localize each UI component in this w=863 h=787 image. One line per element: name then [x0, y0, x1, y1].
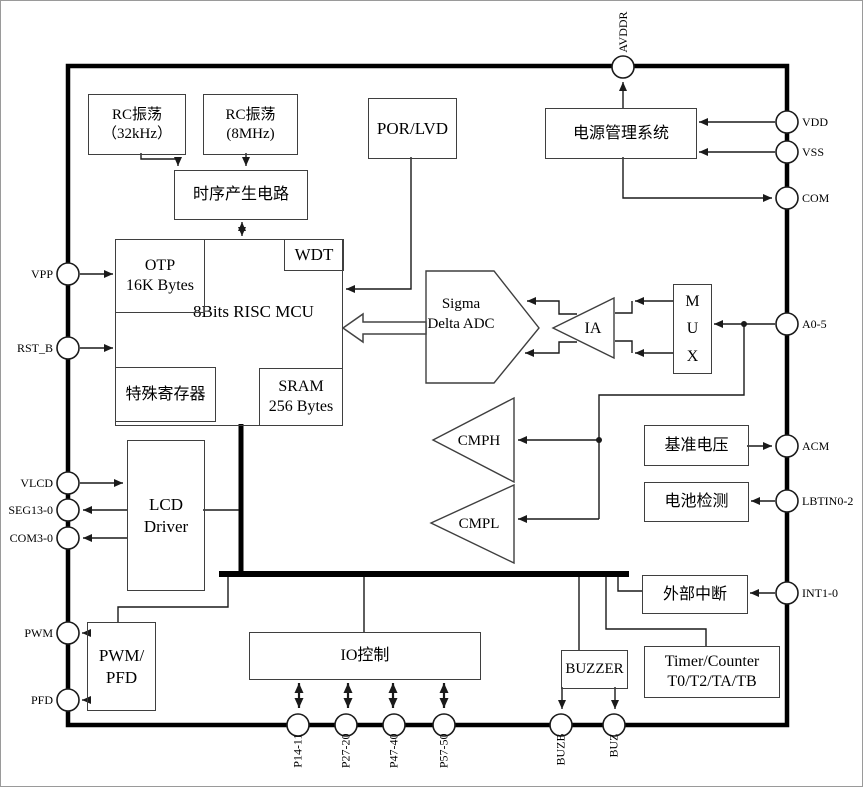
pin-vdd-pad	[776, 111, 798, 133]
sram-line2: 256 Bytes	[269, 397, 333, 417]
block-sram: SRAM 256 Bytes	[259, 368, 343, 426]
pin-p47-label: P47-40	[387, 734, 402, 784]
sfr-label: 特殊寄存器	[125, 385, 205, 405]
buzzer-label: BUZZER	[565, 660, 623, 679]
block-rc-osc-8m: RC振荡 (8MHz)	[203, 94, 298, 155]
pin-vdd-label: VDD	[802, 115, 828, 130]
block-wdt: WDT	[284, 239, 344, 271]
adc-label: Sigma Delta ADC	[426, 295, 496, 334]
timer-line2: T0/T2/TA/TB	[667, 672, 756, 692]
timing-label: 时序产生电路	[193, 185, 289, 205]
pin-int10-pad	[776, 582, 798, 604]
pin-com-pad	[776, 187, 798, 209]
pin-com-label: COM	[802, 191, 829, 206]
block-ext-interrupt: 外部中断	[642, 575, 748, 614]
pin-p27-label: P27-20	[339, 734, 354, 784]
pin-acm-pad	[776, 435, 798, 457]
pin-lbtin-pad	[776, 490, 798, 512]
wire-mux-ia-bottom-step	[615, 341, 632, 353]
lcd-line2: Driver	[144, 516, 188, 537]
vref-label: 基准电压	[664, 436, 728, 456]
power-label: 电源管理系统	[573, 124, 669, 144]
pin-pwm-pad	[57, 622, 79, 644]
wire-power-com	[623, 157, 772, 198]
wire-ia-adc-bottom	[525, 342, 577, 353]
sram-line1: SRAM	[278, 377, 323, 397]
lcd-line1: LCD	[149, 494, 183, 515]
pin-vlcd-pad	[57, 472, 79, 494]
block-vref: 基准电压	[644, 425, 749, 466]
wire-ia-adc-top	[527, 301, 577, 314]
mux-line3: X	[687, 343, 699, 370]
rc32-line2: （32kHz）	[102, 125, 172, 144]
mcu-line2: RISC MCU	[233, 302, 314, 321]
pin-acm-label: ACM	[802, 439, 829, 454]
pin-vss-label: VSS	[802, 145, 824, 160]
pin-com3-pad	[57, 527, 79, 549]
junction-dot-cmph	[596, 437, 602, 443]
porlvd-label: POR/LVD	[377, 118, 448, 139]
block-por-lvd: POR/LVD	[368, 98, 457, 159]
pin-buzb-label: BUZB	[554, 734, 569, 784]
otp-line1: OTP	[145, 256, 175, 276]
junction-dot-a05	[741, 321, 747, 327]
ext-interrupt-label: 外部中断	[663, 585, 727, 605]
pwmpfd-line2: PFD	[106, 667, 137, 688]
block-special-registers: 特殊寄存器	[115, 367, 216, 422]
pin-seg-label: SEG13-0	[1, 503, 53, 518]
block-otp: OTP 16K Bytes	[115, 239, 205, 313]
pin-avddr-label: AVDDR	[616, 2, 630, 62]
pin-pfd-pad	[57, 689, 79, 711]
wdt-label: WDT	[295, 244, 334, 265]
pin-rstb-label: RST_B	[3, 341, 53, 356]
otp-line2: 16K Bytes	[126, 276, 194, 296]
pin-com3-label: COM3-0	[1, 531, 53, 546]
cmpl-label: CMPL	[447, 515, 511, 535]
mux-line1: M	[685, 288, 699, 315]
pin-lbtin-label: LBTIN0-2	[802, 494, 853, 509]
pin-vpp-pad	[57, 263, 79, 285]
io-control-label: IO控制	[341, 646, 390, 666]
cmph-label: CMPH	[447, 432, 511, 452]
block-timer-counter: Timer/Counter T0/T2/TA/TB	[644, 646, 780, 698]
pin-buz-label: BUZ	[607, 734, 622, 784]
rc32-line1: RC振荡	[112, 106, 162, 125]
pin-seg-pad	[57, 499, 79, 521]
wire-mux-ia-top-step	[615, 301, 632, 313]
pin-p14-label: P14-11	[291, 734, 306, 784]
pin-rstb-pad	[57, 337, 79, 359]
block-lcd-driver: LCD Driver	[127, 440, 205, 591]
wire-porlvd-mcu	[346, 157, 411, 289]
pin-vss-pad	[776, 141, 798, 163]
block-buzzer: BUZZER	[561, 650, 628, 689]
pwmpfd-line1: PWM/	[99, 645, 144, 666]
mux-line2: U	[687, 315, 699, 342]
rc8-line1: RC振荡	[225, 106, 275, 125]
rc8-line2: (8MHz)	[226, 125, 274, 144]
adc-mcu-bus-arrow	[343, 314, 426, 342]
pin-a05-label: A0-5	[802, 317, 827, 332]
block-mux: M U X	[673, 284, 712, 374]
chip-block-diagram: RC振荡 （32kHz） RC振荡 (8MHz) 时序产生电路 POR/LVD …	[0, 0, 863, 787]
block-rc-osc-32k: RC振荡 （32kHz）	[88, 94, 186, 155]
adc-line1: Sigma	[442, 296, 480, 312]
pin-int10-label: INT1-0	[802, 586, 838, 601]
adc-line2: Delta	[427, 316, 459, 332]
pin-p57-label: P57-50	[437, 734, 452, 784]
wire-bus-extint	[618, 577, 642, 591]
ia-label: IA	[575, 319, 611, 340]
pin-vpp-label: VPP	[3, 267, 53, 282]
timer-line1: Timer/Counter	[665, 652, 760, 672]
pin-a05-pad	[776, 313, 798, 335]
adc-line3: ADC	[463, 316, 495, 332]
block-pwm-pfd: PWM/ PFD	[87, 622, 156, 711]
battery-detect-label: 电池检测	[664, 492, 728, 512]
pin-pfd-label: PFD	[3, 693, 53, 708]
pin-pwm-label: PWM	[3, 626, 53, 641]
block-power-management: 电源管理系统	[545, 108, 697, 159]
block-timing-generator: 时序产生电路	[174, 170, 308, 220]
pin-vlcd-label: VLCD	[3, 476, 53, 491]
block-io-control: IO控制	[249, 632, 481, 680]
block-battery-detect: 电池检测	[644, 482, 749, 522]
